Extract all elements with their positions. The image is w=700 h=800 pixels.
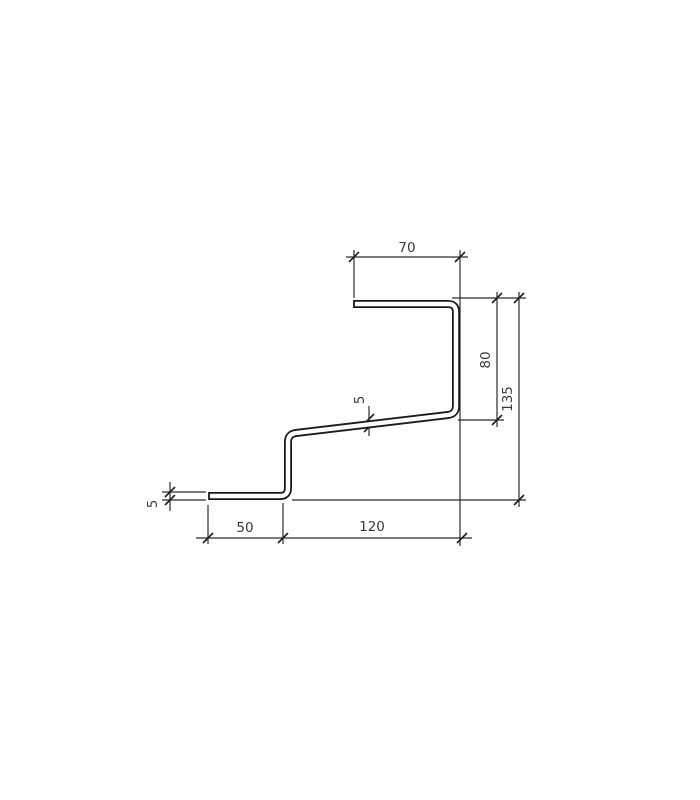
dimension-total-right-height: 135	[500, 292, 524, 507]
profile-sheet-inner	[209, 304, 456, 496]
dim-label-135: 135	[500, 386, 516, 412]
dimension-upper-right-height: 80	[478, 292, 502, 427]
dim-label-5-flange: 5	[145, 500, 161, 509]
dimension-bottom-widths: 50 120	[196, 519, 472, 543]
dim-label-120: 120	[359, 519, 385, 535]
profile-outline	[209, 300, 456, 500]
extension-lines	[162, 250, 526, 546]
dim-label-80: 80	[478, 351, 494, 368]
dimension-flange-thickness: 5	[145, 482, 175, 511]
technical-drawing: 70 80 135 5 5 50	[0, 0, 700, 800]
product-drawing-page: 70 80 135 5 5 50	[0, 0, 700, 800]
dim-label-50: 50	[236, 520, 253, 536]
dim-label-5-web: 5	[352, 396, 368, 405]
dimension-top-width: 70	[346, 240, 468, 262]
profile-sheet-outer	[209, 304, 456, 496]
dim-label-70: 70	[398, 240, 415, 256]
